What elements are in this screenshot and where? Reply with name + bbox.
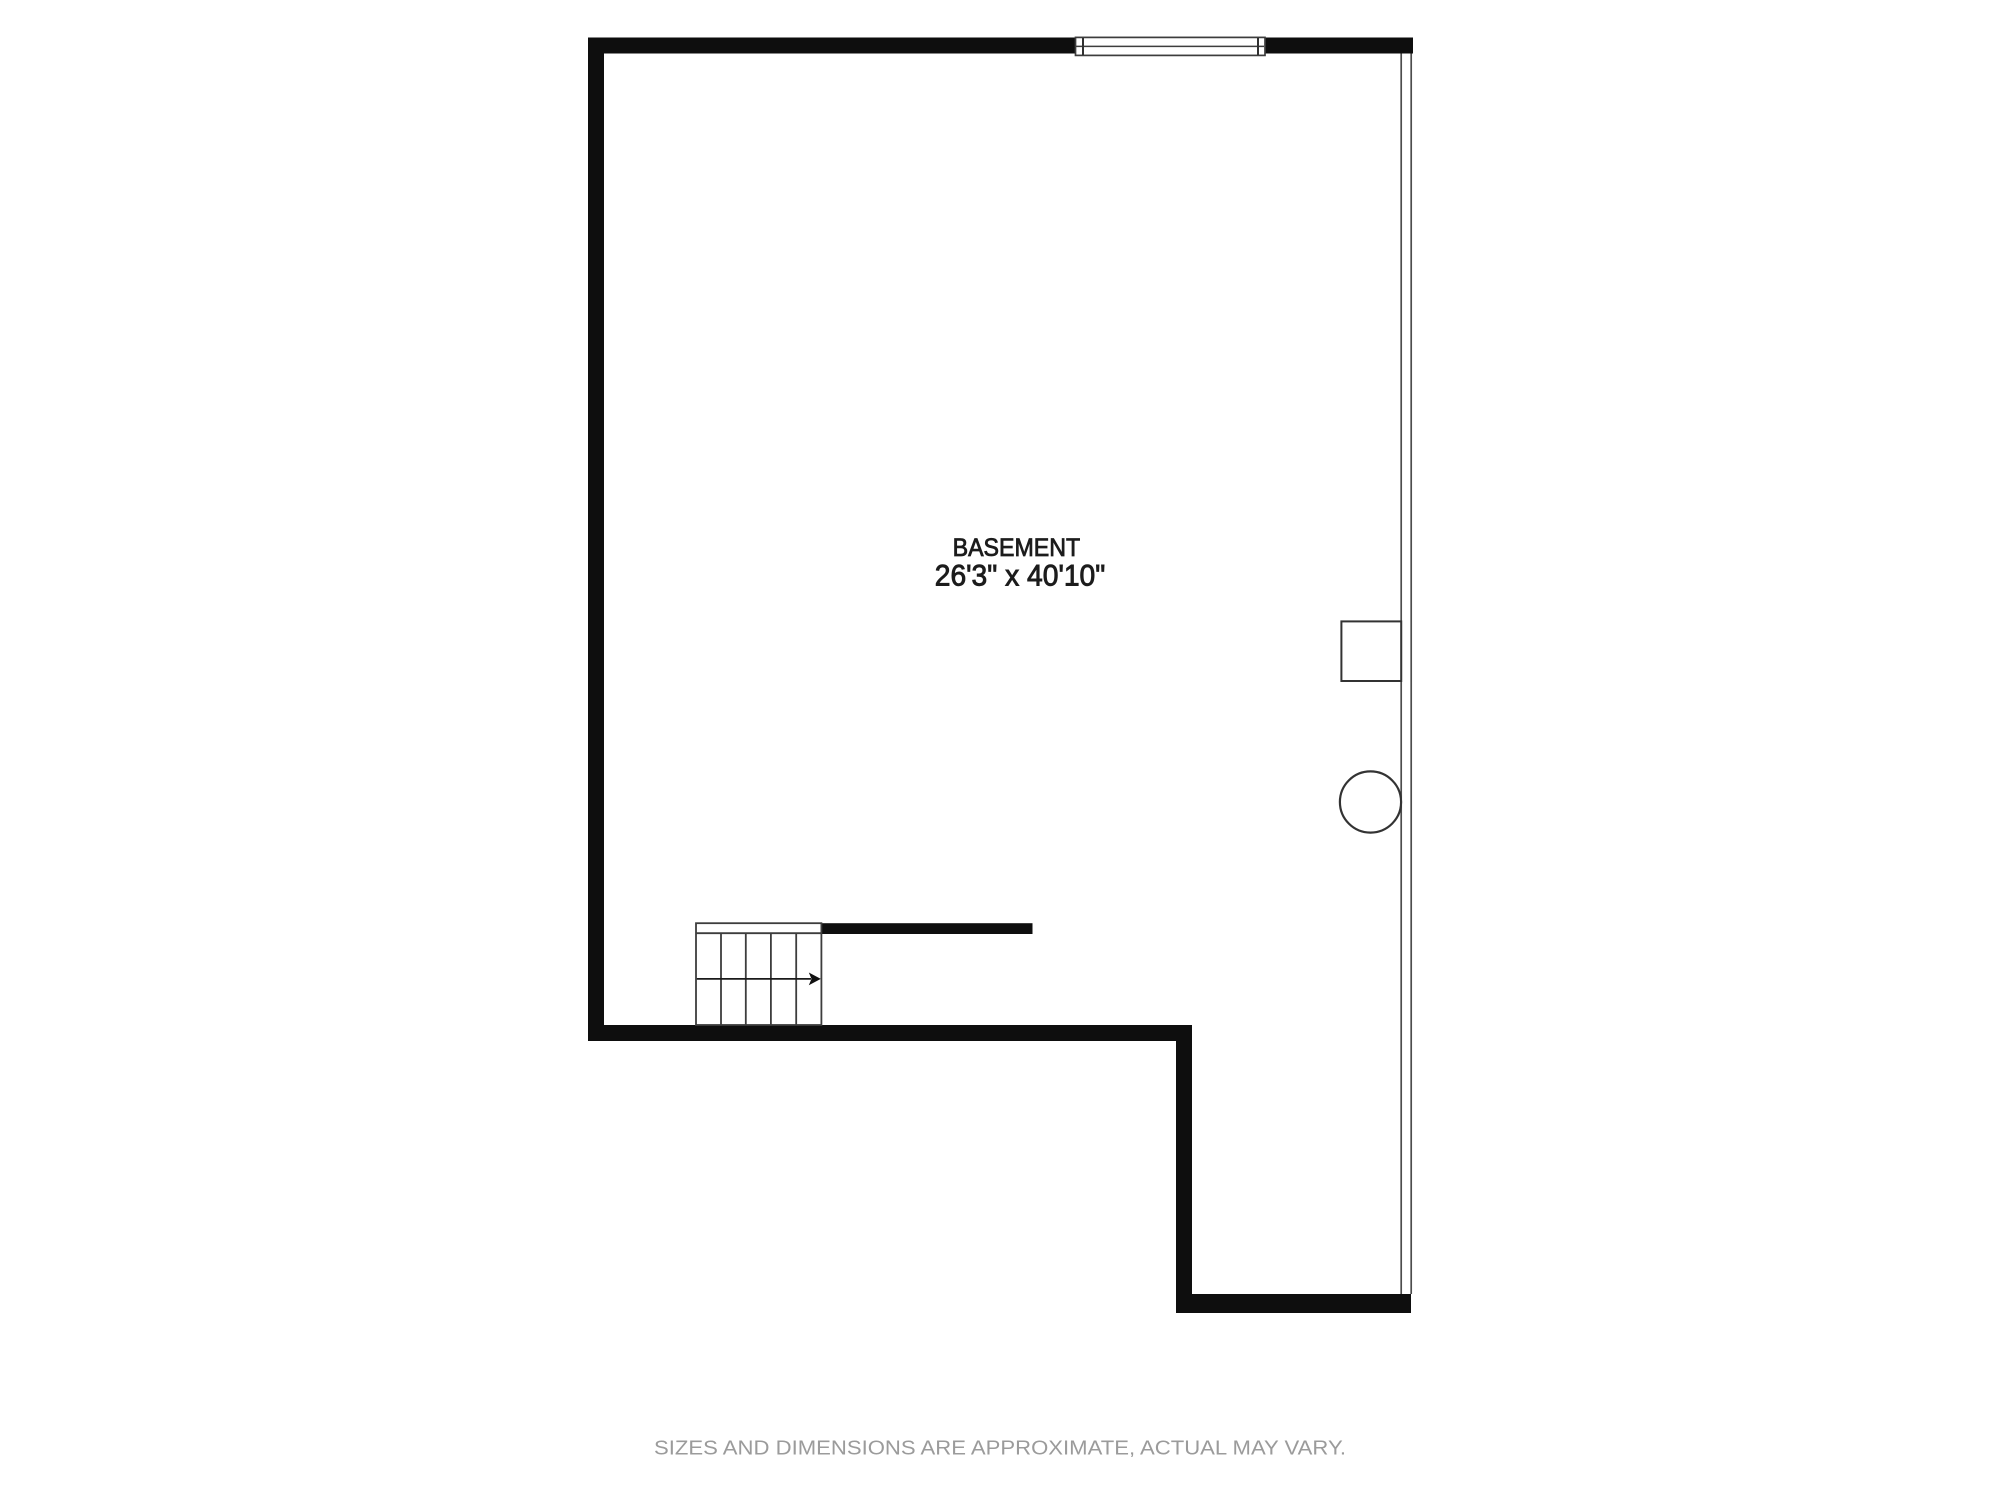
svg-text:BASEMENT: BASEMENT bbox=[953, 534, 1081, 562]
svg-text:26'3" x 40'10": 26'3" x 40'10" bbox=[935, 560, 1106, 593]
svg-text:SIZES AND DIMENSIONS ARE APPRO: SIZES AND DIMENSIONS ARE APPROXIMATE, AC… bbox=[654, 1437, 1346, 1459]
